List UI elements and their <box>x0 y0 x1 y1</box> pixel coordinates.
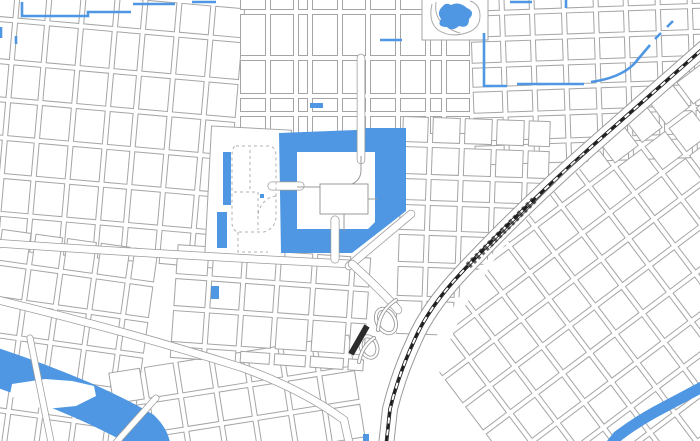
city-block <box>598 0 623 7</box>
city-block <box>179 3 210 34</box>
map-canvas[interactable] <box>0 0 700 441</box>
city-block <box>271 99 294 112</box>
city-block <box>80 29 112 68</box>
park-moat-strip-north <box>223 152 231 205</box>
city-block <box>213 6 244 37</box>
city-block <box>598 11 624 33</box>
city-block <box>271 0 294 10</box>
city-block <box>206 82 238 117</box>
city-block <box>67 184 99 219</box>
city-block <box>661 35 689 57</box>
city-block <box>299 15 308 56</box>
city-block <box>178 357 213 392</box>
city-block <box>447 99 470 112</box>
city-block <box>660 0 687 5</box>
city-block <box>628 0 655 6</box>
city-block <box>692 8 700 30</box>
city-block <box>162 193 194 228</box>
city-block <box>258 416 294 441</box>
water-dot-south <box>363 434 369 441</box>
city-block <box>494 182 522 204</box>
city-block <box>601 87 627 109</box>
city-block <box>171 310 204 343</box>
city-block <box>463 149 491 177</box>
city-block <box>313 61 338 94</box>
city-block <box>114 32 140 71</box>
city-block <box>495 150 523 178</box>
city-block <box>92 279 125 314</box>
city-block <box>241 15 266 56</box>
park-pond-dot <box>260 194 264 198</box>
park-moat-strip-lower <box>211 286 219 299</box>
city-block <box>240 351 270 364</box>
city-block <box>507 90 533 112</box>
pool-north-of-moat <box>310 103 323 108</box>
city-block <box>6 414 38 441</box>
city-block <box>144 363 177 398</box>
city-block <box>77 71 109 106</box>
city-block <box>176 37 208 76</box>
city-block <box>40 106 72 141</box>
city-block <box>0 20 13 59</box>
city-block <box>0 62 9 97</box>
city-block <box>244 283 275 312</box>
city-block <box>428 235 456 263</box>
city-block <box>169 117 201 152</box>
city-block <box>535 39 563 61</box>
city-block <box>471 41 501 63</box>
park-moat-strip-south <box>217 212 227 248</box>
city-block <box>135 114 167 149</box>
castle-inner-bailey <box>320 184 368 214</box>
city-block <box>27 270 58 304</box>
city-block <box>0 100 6 135</box>
city-block <box>224 421 258 441</box>
city-block <box>431 148 459 176</box>
city-block <box>107 112 133 147</box>
city-block <box>343 15 366 56</box>
city-block <box>70 146 102 181</box>
park-moat-strip-north <box>223 152 231 205</box>
city-block <box>126 284 153 318</box>
water-dot-south <box>363 434 369 441</box>
city-block <box>537 89 565 111</box>
city-block <box>132 152 164 187</box>
city-block <box>241 99 266 112</box>
city-block <box>431 61 442 94</box>
map-viewport[interactable] <box>0 0 700 441</box>
city-block <box>4 141 34 176</box>
city-block <box>241 61 266 94</box>
city-block <box>534 0 561 9</box>
city-block <box>172 79 204 114</box>
city-block <box>299 0 308 10</box>
city-block <box>278 286 311 315</box>
city-block <box>299 61 308 94</box>
city-block <box>536 65 564 85</box>
city-block <box>462 181 490 203</box>
city-block <box>431 99 442 112</box>
city-block <box>166 155 198 190</box>
city-block <box>58 274 91 309</box>
city-block <box>311 320 346 353</box>
city-block <box>241 315 272 348</box>
city-block <box>401 99 426 112</box>
city-block <box>189 426 225 441</box>
city-block <box>567 38 595 60</box>
city-block <box>104 149 130 184</box>
city-block <box>271 61 294 94</box>
city-block <box>567 12 595 34</box>
city-block <box>73 109 105 144</box>
city-block <box>371 15 396 56</box>
city-block <box>11 65 41 100</box>
city-block <box>569 88 597 110</box>
city-block <box>139 76 171 111</box>
city-block <box>397 266 423 296</box>
pool-north-of-moat <box>310 103 323 108</box>
city-block <box>430 179 458 201</box>
city-block <box>429 205 457 231</box>
city-block <box>210 40 242 79</box>
city-block <box>33 181 65 216</box>
city-block <box>599 37 625 59</box>
city-block <box>527 151 549 179</box>
city-block <box>505 40 531 62</box>
park-moat-strip-lower <box>211 286 219 299</box>
city-block <box>351 291 368 319</box>
city-block <box>8 103 38 138</box>
city-block <box>310 356 344 369</box>
city-block <box>275 318 308 351</box>
city-block <box>0 410 6 441</box>
park-pond-dot <box>260 194 264 198</box>
park-moat-strip-south <box>217 212 227 248</box>
city-block <box>0 265 26 300</box>
city-block <box>207 313 238 346</box>
city-block <box>473 91 503 113</box>
city-block <box>1 179 31 214</box>
city-block <box>241 0 266 10</box>
city-block <box>343 0 366 10</box>
city-block <box>447 61 470 94</box>
city-block <box>299 117 308 134</box>
city-block <box>274 354 306 367</box>
city-block <box>371 0 396 10</box>
city-block <box>299 99 308 112</box>
city-block <box>692 0 700 4</box>
city-block <box>472 67 502 87</box>
city-block <box>401 61 426 94</box>
city-block <box>14 23 44 62</box>
city-block <box>464 119 492 145</box>
city-block <box>50 0 81 23</box>
city-block <box>505 14 531 36</box>
city-block <box>535 13 563 35</box>
city-block <box>313 15 338 56</box>
city-block <box>0 138 2 173</box>
city-block <box>496 120 524 146</box>
city-block <box>271 15 294 56</box>
city-block <box>129 190 161 225</box>
city-block <box>37 419 71 441</box>
city-block <box>371 61 396 94</box>
city-block <box>313 0 338 10</box>
city-block <box>628 10 656 32</box>
city-block <box>566 0 593 8</box>
city-block <box>46 26 78 65</box>
city-block <box>0 0 16 18</box>
city-block <box>294 410 328 441</box>
city-block <box>43 68 75 103</box>
city-block <box>528 121 550 147</box>
city-block <box>322 371 359 405</box>
city-block <box>219 388 252 421</box>
city-block <box>398 234 424 262</box>
city-block <box>314 288 349 317</box>
city-block <box>371 99 396 112</box>
city-block <box>174 279 207 308</box>
city-block <box>36 143 68 178</box>
city-block <box>111 74 137 109</box>
city-block <box>403 116 429 142</box>
city-block <box>101 187 127 222</box>
city-block <box>660 9 688 31</box>
city-block <box>184 393 219 426</box>
city-block <box>142 34 174 73</box>
city-block <box>461 207 489 233</box>
city-block <box>432 118 460 144</box>
